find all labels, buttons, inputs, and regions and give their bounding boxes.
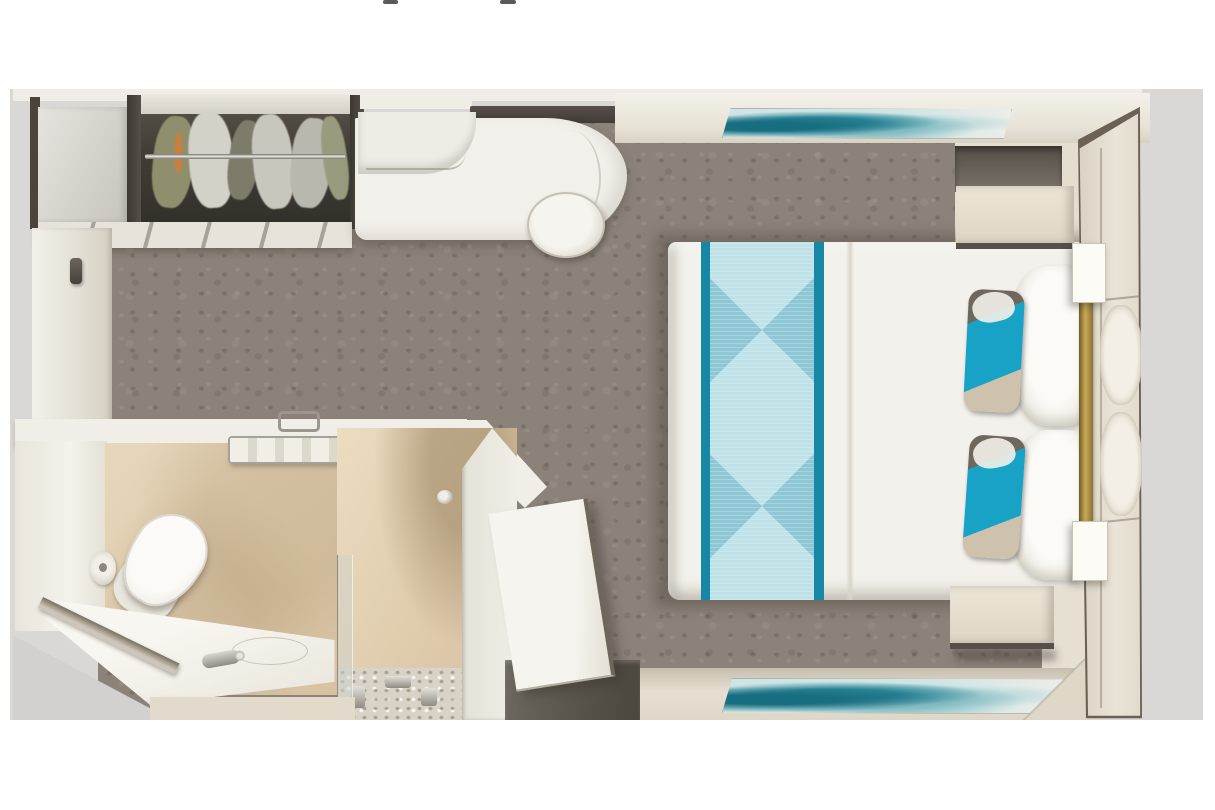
wall-sconce-top bbox=[1072, 243, 1106, 303]
gold-trim bbox=[1079, 298, 1093, 522]
clothes-rail bbox=[145, 154, 345, 159]
wardrobe bbox=[141, 94, 350, 225]
pillow-flap bbox=[970, 434, 1017, 472]
shower-fitting bbox=[385, 676, 411, 688]
wall-handle bbox=[70, 258, 82, 284]
stool bbox=[527, 192, 605, 258]
cropped-text-remnant-left bbox=[383, 0, 398, 4]
shower-valve bbox=[437, 490, 453, 504]
wardrobe-top-shelf bbox=[141, 94, 350, 114]
towel-rack bbox=[228, 436, 350, 464]
headboard-cushion bbox=[1100, 412, 1142, 516]
nightstand-bottom bbox=[950, 586, 1054, 649]
desk-drawer-unit bbox=[358, 112, 476, 174]
shower-glass-door bbox=[337, 555, 353, 720]
bathroom-bottom-wall bbox=[150, 697, 355, 720]
stateroom-floor-plan bbox=[0, 0, 1215, 810]
shower bbox=[337, 428, 517, 720]
garment bbox=[175, 134, 182, 172]
grab-handle bbox=[278, 411, 320, 432]
pillow-flap bbox=[969, 288, 1017, 327]
artwork-bottom bbox=[722, 678, 1066, 714]
accent-pillow bbox=[963, 289, 1025, 414]
floor-plan-card bbox=[10, 89, 1203, 720]
bed bbox=[668, 242, 1095, 600]
desk-wall-band bbox=[360, 95, 472, 109]
headboard-cushion bbox=[1100, 305, 1142, 405]
nightstand-top bbox=[956, 186, 1074, 249]
cropped-text-remnant-right bbox=[500, 0, 516, 4]
nightstand-shadow bbox=[956, 649, 1056, 661]
shower-fitting bbox=[421, 688, 437, 706]
duvet-fold bbox=[846, 242, 854, 600]
washbasin bbox=[232, 637, 308, 665]
shelf-tower bbox=[38, 107, 127, 223]
wall-sconce-bottom bbox=[1072, 521, 1108, 581]
artwork-top bbox=[722, 108, 1012, 139]
accent-pillow bbox=[962, 434, 1026, 560]
toilet-paper-holder bbox=[90, 551, 116, 585]
left-wall bbox=[32, 228, 112, 424]
wardrobe-divider bbox=[127, 95, 141, 229]
bottom-wall bbox=[630, 668, 1100, 720]
bed-runner bbox=[701, 242, 824, 600]
panel-seam bbox=[1100, 148, 1102, 708]
shower-mosaic-floor bbox=[337, 668, 463, 720]
